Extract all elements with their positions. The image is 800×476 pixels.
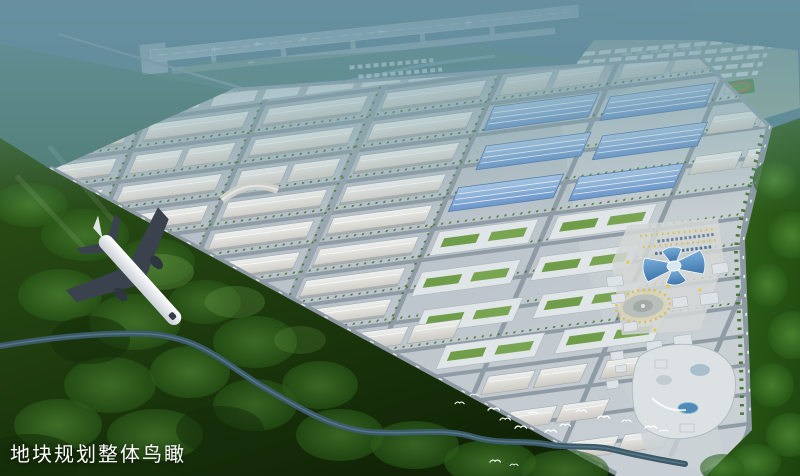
aerial-rendering: [0, 0, 800, 476]
rendering-canvas: 地块规划整体鸟瞰: [0, 0, 800, 476]
mall-skylight: [690, 364, 710, 376]
atmospheric-haze: [0, 0, 800, 215]
caption: 地块规划整体鸟瞰: [10, 438, 186, 467]
mall-pool: [678, 403, 698, 414]
